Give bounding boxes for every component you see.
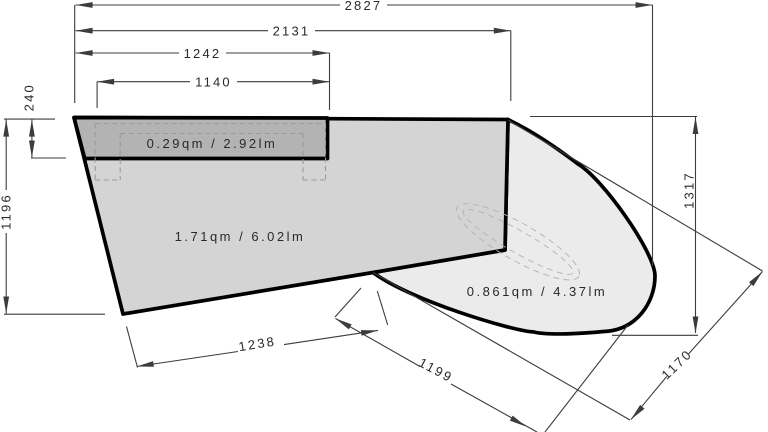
svg-text:1170: 1170 <box>658 346 695 382</box>
svg-text:0.29qm / 2.92lm: 0.29qm / 2.92lm <box>147 136 278 151</box>
svg-text:1317: 1317 <box>682 171 697 209</box>
svg-text:1140: 1140 <box>195 75 232 90</box>
svg-text:1242: 1242 <box>184 46 222 61</box>
svg-text:1238: 1238 <box>237 333 277 354</box>
svg-text:0.861qm / 4.37lm: 0.861qm / 4.37lm <box>467 284 607 299</box>
svg-text:240: 240 <box>22 83 37 111</box>
svg-text:2827: 2827 <box>345 0 383 13</box>
svg-text:1.71qm / 6.02lm: 1.71qm / 6.02lm <box>175 229 306 244</box>
svg-text:1199: 1199 <box>416 355 456 386</box>
svg-text:2131: 2131 <box>273 24 311 39</box>
svg-text:1196: 1196 <box>0 193 14 230</box>
